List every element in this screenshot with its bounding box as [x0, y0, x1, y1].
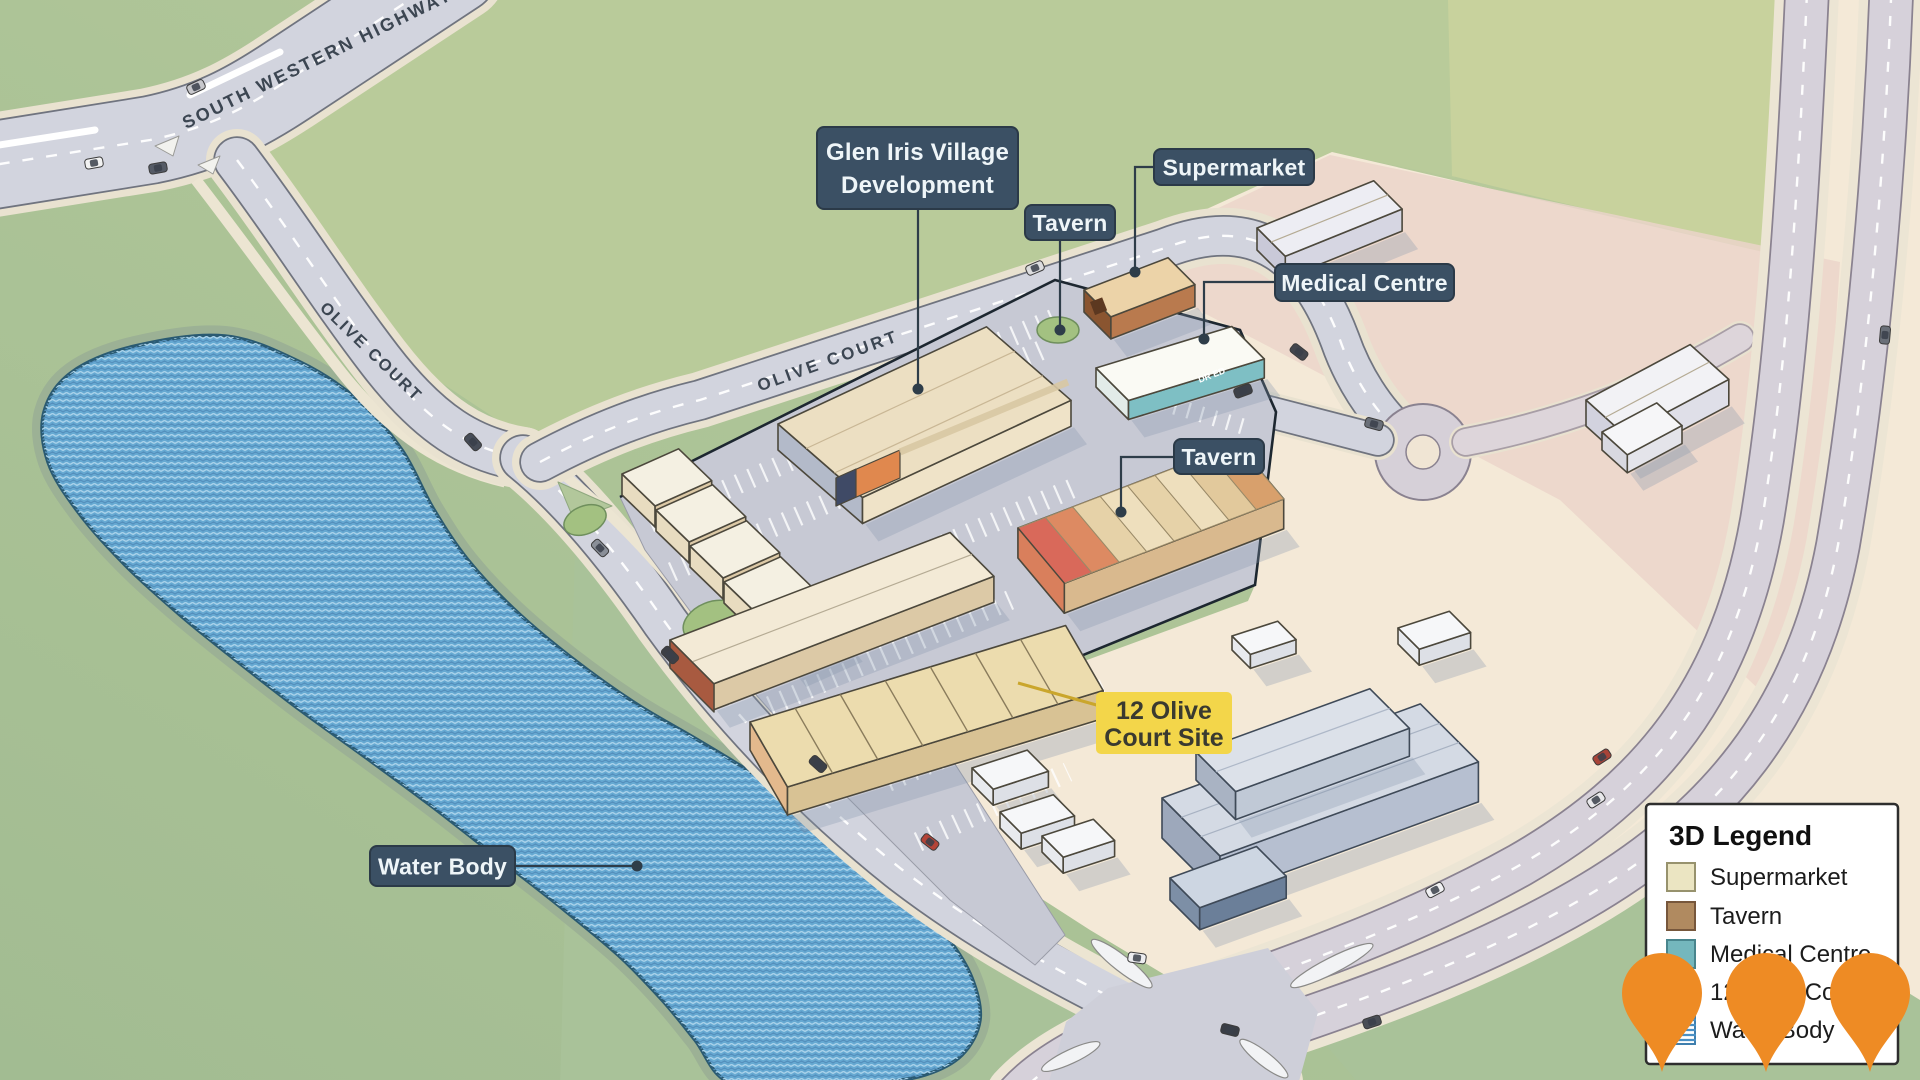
svg-text:Medical Centre: Medical Centre [1281, 270, 1447, 296]
svg-text:Tavern: Tavern [1710, 903, 1782, 930]
svg-text:Supermarket: Supermarket [1710, 864, 1848, 891]
svg-text:Development: Development [841, 172, 994, 199]
svg-text:Glen Iris Village: Glen Iris Village [826, 139, 1009, 166]
svg-text:3D Legend: 3D Legend [1669, 820, 1812, 851]
svg-text:Water Body: Water Body [378, 853, 507, 879]
svg-text:Court Site: Court Site [1104, 724, 1224, 752]
svg-text:Supermarket: Supermarket [1163, 154, 1306, 180]
svg-text:Tavern: Tavern [1033, 210, 1108, 236]
svg-text:12 Olive: 12 Olive [1116, 697, 1212, 725]
svg-text:Tavern: Tavern [1182, 444, 1257, 470]
